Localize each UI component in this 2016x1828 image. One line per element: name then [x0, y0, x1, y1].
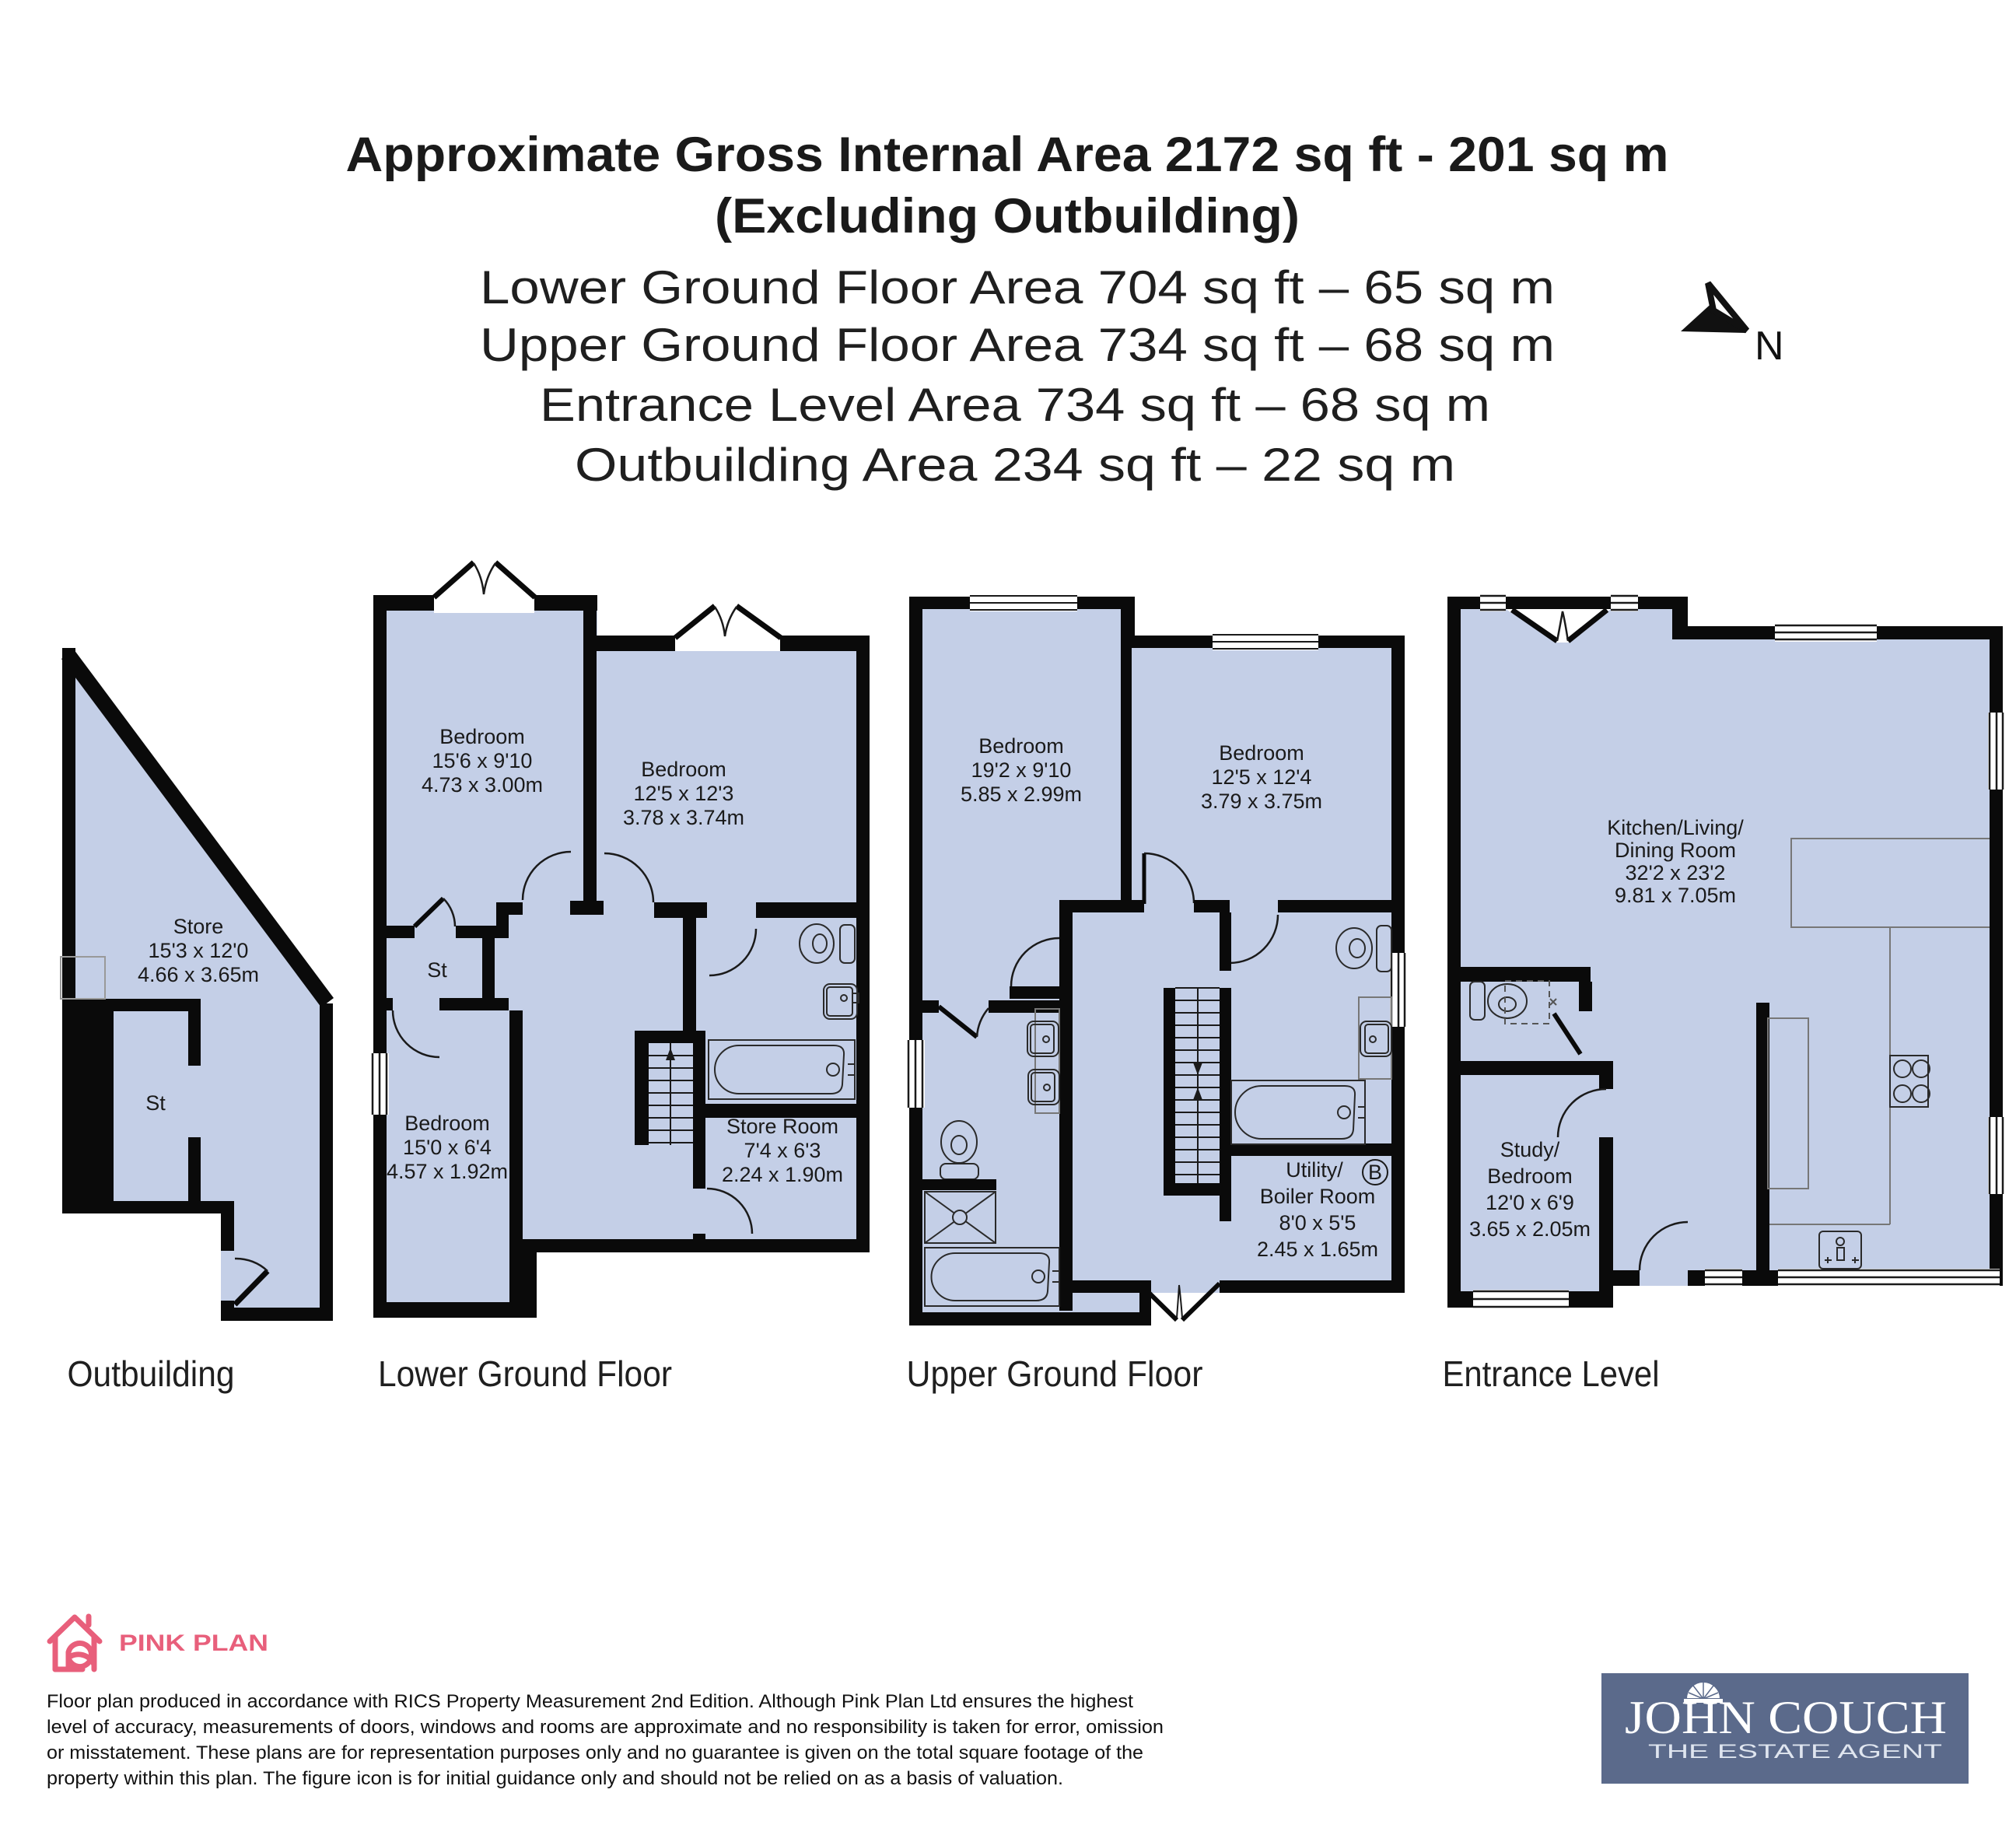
svg-text:2.45 x 1.65m: 2.45 x 1.65m: [1257, 1238, 1378, 1261]
svg-text:Utility/: Utility/: [1286, 1158, 1343, 1182]
svg-text:Bedroom: Bedroom: [1219, 741, 1304, 765]
svg-text:Store: Store: [173, 915, 224, 938]
svg-text:Bedroom: Bedroom: [439, 725, 525, 748]
svg-text:32'2 x 23'2: 32'2 x 23'2: [1626, 861, 1726, 884]
svg-text:Floor plan produced in accorda: Floor plan produced in accordance with R…: [47, 1691, 1133, 1712]
svg-text:Bedroom: Bedroom: [978, 734, 1064, 758]
svg-text:PINK PLAN: PINK PLAN: [119, 1630, 268, 1656]
svg-text:(Excluding Outbuilding): (Excluding Outbuilding): [715, 189, 1300, 243]
svg-text:4.57 x 1.92m: 4.57 x 1.92m: [387, 1160, 508, 1183]
svg-text:Kitchen/Living/: Kitchen/Living/: [1607, 816, 1744, 839]
svg-text:Lower Ground Floor: Lower Ground Floor: [378, 1353, 672, 1394]
svg-text:3.78 x 3.74m: 3.78 x 3.74m: [623, 806, 744, 829]
svg-text:Upper Ground Floor: Upper Ground Floor: [907, 1353, 1203, 1394]
svg-text:Store Room: Store Room: [726, 1115, 838, 1138]
svg-text:JOHN COUCH: JOHN COUCH: [1625, 1692, 1947, 1743]
svg-text:15'0 x 6'4: 15'0 x 6'4: [403, 1136, 492, 1159]
svg-text:15'3 x 12'0: 15'3 x 12'0: [149, 939, 249, 962]
svg-text:Entrance Level Area 734 sq ft: Entrance Level Area 734 sq ft – 68 sq m: [540, 379, 1490, 431]
svg-text:THE ESTATE AGENT: THE ESTATE AGENT: [1648, 1741, 1942, 1763]
svg-text:Lower Ground Floor Area 704 sq: Lower Ground Floor Area 704 sq ft – 65 s…: [480, 261, 1555, 313]
svg-text:12'5 x 12'4: 12'5 x 12'4: [1212, 765, 1312, 789]
svg-text:Approximate Gross Internal Are: Approximate Gross Internal Area 2172 sq …: [346, 128, 1669, 182]
svg-text:level of accuracy, measurement: level of accuracy, measurements of doors…: [47, 1717, 1164, 1738]
svg-text:St: St: [427, 958, 447, 982]
svg-text:19'2 x 9'10: 19'2 x 9'10: [971, 758, 1072, 782]
svg-text:B: B: [1368, 1161, 1382, 1184]
svg-text:12'5 x 12'3: 12'5 x 12'3: [634, 782, 734, 805]
svg-text:Outbuilding: Outbuilding: [68, 1353, 235, 1394]
svg-text:Bedroom: Bedroom: [1487, 1164, 1573, 1188]
svg-text:2.24 x 1.90m: 2.24 x 1.90m: [722, 1163, 843, 1186]
svg-text:Dining Room: Dining Room: [1615, 839, 1736, 862]
svg-text:N: N: [1755, 324, 1784, 369]
svg-text:Entrance Level: Entrance Level: [1443, 1353, 1660, 1394]
svg-text:Outbuilding Area 234 sq ft – 2: Outbuilding Area 234 sq ft – 22 sq m: [575, 439, 1455, 491]
svg-text:3.79 x 3.75m: 3.79 x 3.75m: [1201, 790, 1322, 813]
svg-text:property within this plan. The: property within this plan. The figure ic…: [47, 1768, 1063, 1789]
svg-text:Bedroom: Bedroom: [404, 1112, 490, 1135]
svg-text:or misstatement. These plans a: or misstatement. These plans are for rep…: [47, 1742, 1143, 1763]
svg-text:Upper Ground Floor Area 734 sq: Upper Ground Floor Area 734 sq ft – 68 s…: [480, 319, 1555, 371]
svg-text:15'6 x 9'10: 15'6 x 9'10: [432, 749, 533, 772]
svg-text:3.65 x 2.05m: 3.65 x 2.05m: [1469, 1217, 1591, 1241]
svg-text:4.73 x 3.00m: 4.73 x 3.00m: [422, 773, 543, 797]
svg-text:St: St: [145, 1091, 166, 1115]
svg-text:12'0 x 6'9: 12'0 x 6'9: [1486, 1191, 1574, 1214]
svg-text:8'0 x 5'5: 8'0 x 5'5: [1279, 1211, 1356, 1234]
svg-text:9.81 x 7.05m: 9.81 x 7.05m: [1615, 884, 1736, 907]
svg-text:Boiler Room: Boiler Room: [1260, 1185, 1376, 1208]
svg-text:4.66 x 3.65m: 4.66 x 3.65m: [138, 963, 259, 986]
svg-text:Study/: Study/: [1500, 1138, 1560, 1161]
svg-text:7'4 x 6'3: 7'4 x 6'3: [744, 1139, 821, 1162]
svg-text:Bedroom: Bedroom: [641, 758, 726, 781]
svg-text:5.85 x 2.99m: 5.85 x 2.99m: [961, 783, 1082, 806]
